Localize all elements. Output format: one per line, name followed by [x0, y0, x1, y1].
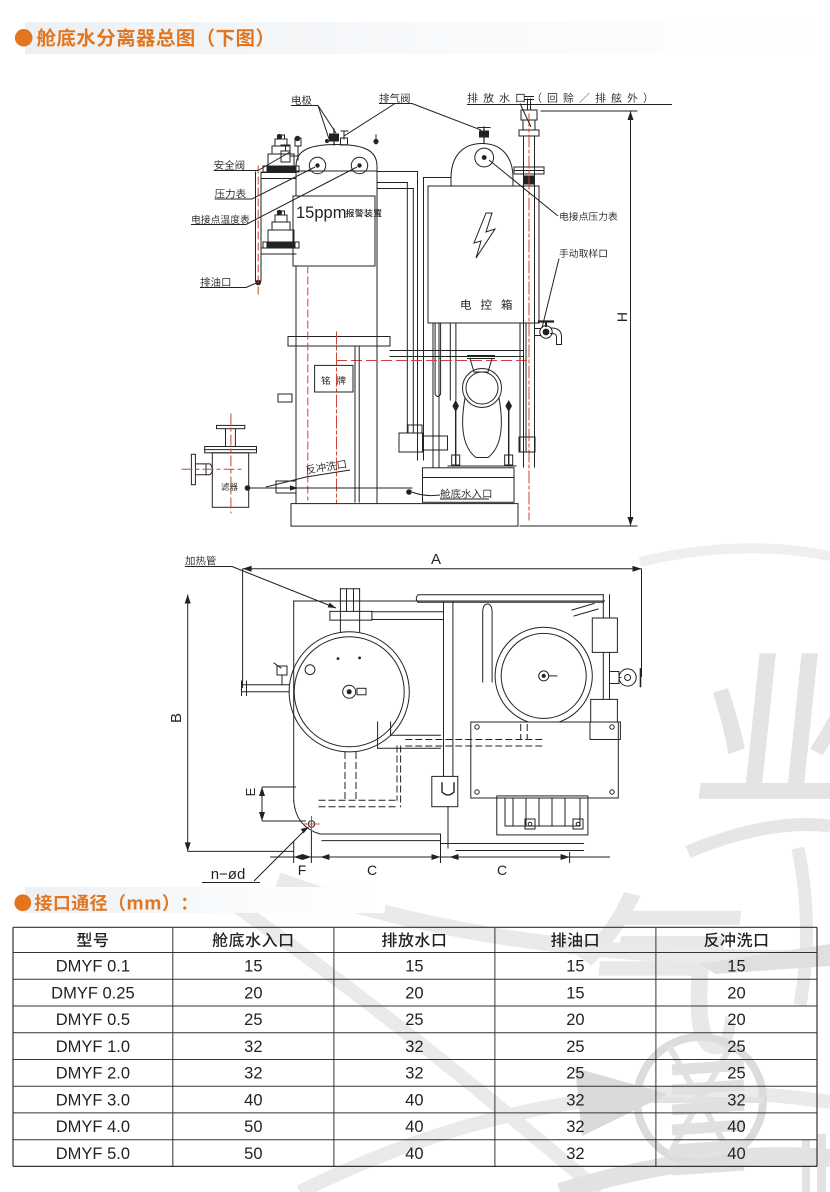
- svg-text:32: 32: [727, 1091, 745, 1109]
- svg-text:H: H: [614, 312, 630, 322]
- svg-text:25: 25: [244, 1011, 262, 1029]
- svg-text:32: 32: [566, 1118, 584, 1136]
- svg-text:DMYF 0.25: DMYF 0.25: [51, 984, 134, 1002]
- svg-text:25: 25: [727, 1065, 745, 1083]
- svg-text:15: 15: [566, 958, 584, 976]
- svg-text:25: 25: [727, 1038, 745, 1056]
- svg-text:DMYF 3.0: DMYF 3.0: [56, 1091, 130, 1109]
- svg-text:C: C: [497, 862, 507, 878]
- svg-text:F: F: [298, 862, 307, 878]
- svg-text:40: 40: [727, 1118, 745, 1136]
- svg-text:25: 25: [566, 1038, 584, 1056]
- svg-text:20: 20: [244, 984, 262, 1002]
- svg-text:A: A: [431, 551, 441, 568]
- svg-text:DMYF 1.0: DMYF 1.0: [56, 1038, 130, 1056]
- svg-text:15: 15: [405, 958, 423, 976]
- svg-text:25: 25: [566, 1065, 584, 1083]
- svg-text:15ppm: 15ppm: [296, 204, 346, 222]
- svg-text:50: 50: [244, 1118, 262, 1136]
- svg-text:n−ød: n−ød: [211, 866, 246, 883]
- svg-text:32: 32: [244, 1065, 262, 1083]
- svg-text:32: 32: [244, 1038, 262, 1056]
- svg-text:20: 20: [727, 1011, 745, 1029]
- svg-text:15: 15: [727, 958, 745, 976]
- svg-text:32: 32: [405, 1065, 423, 1083]
- svg-text:DMYF 2.0: DMYF 2.0: [56, 1065, 130, 1083]
- svg-text:B: B: [168, 713, 185, 723]
- svg-text:40: 40: [244, 1091, 262, 1109]
- svg-text:40: 40: [727, 1145, 745, 1163]
- svg-text:40: 40: [405, 1091, 423, 1109]
- svg-text:15: 15: [244, 958, 262, 976]
- svg-text:50: 50: [244, 1145, 262, 1163]
- svg-text:DMYF 0.5: DMYF 0.5: [56, 1011, 130, 1029]
- svg-text:DMYF 5.0: DMYF 5.0: [56, 1145, 130, 1163]
- svg-text:32: 32: [566, 1145, 584, 1163]
- svg-text:20: 20: [566, 1011, 584, 1029]
- svg-text:32: 32: [566, 1091, 584, 1109]
- svg-text:C: C: [367, 862, 377, 878]
- svg-text:25: 25: [405, 1011, 423, 1029]
- svg-text:40: 40: [405, 1145, 423, 1163]
- svg-text:DMYF 0.1: DMYF 0.1: [56, 958, 130, 976]
- svg-text:20: 20: [405, 984, 423, 1002]
- svg-text:DMYF 4.0: DMYF 4.0: [56, 1118, 130, 1136]
- svg-text:E: E: [243, 787, 258, 796]
- svg-text:32: 32: [405, 1038, 423, 1056]
- svg-text:40: 40: [405, 1118, 423, 1136]
- svg-text:20: 20: [727, 984, 745, 1002]
- svg-text:15: 15: [566, 984, 584, 1002]
